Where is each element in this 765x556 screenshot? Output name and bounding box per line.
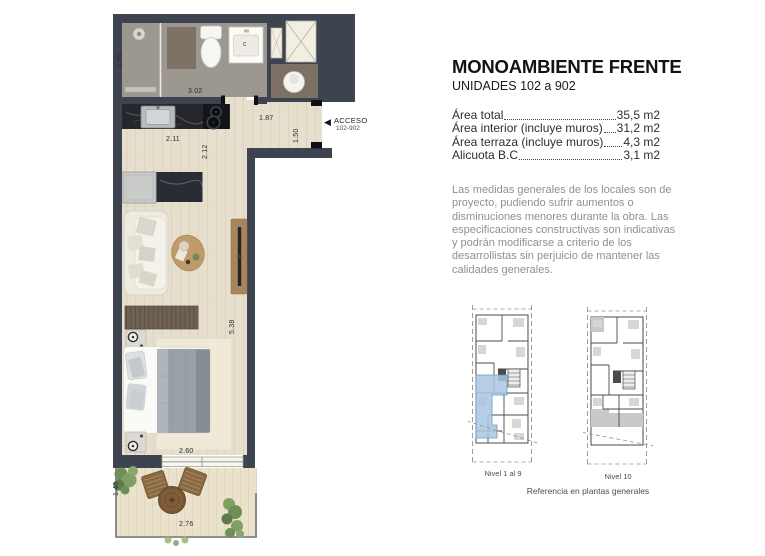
dim-kitchen-width: 2.11	[166, 136, 180, 143]
kitchen-island	[157, 172, 203, 202]
sofa	[124, 211, 168, 295]
area-row: Área interior (incluye muros) 31,2 m2	[452, 122, 660, 136]
area-label: Área interior (incluye muros)	[452, 121, 603, 135]
toilet	[201, 26, 222, 68]
area-row: Área terraza (incluye muros) 4,3 m2	[452, 135, 660, 149]
dim-terrace-width: 2.76	[179, 521, 193, 528]
laundry-room	[271, 64, 318, 98]
area-label: Área terraza (incluye muros)	[452, 135, 603, 149]
nightstand-bottom	[126, 432, 146, 452]
area-label: Área total	[452, 108, 503, 122]
dim-entry-depth: 1.50	[293, 129, 300, 143]
disclaimer-text: Las medidas generales de los locales son…	[452, 184, 680, 277]
area-row: Área total 35,5 m2	[452, 108, 660, 122]
bed	[124, 347, 210, 433]
thumbnail-label-1-9: Nivel 1 al 9	[468, 469, 538, 478]
area-row: Alicuota B.C 3,1 m2	[452, 149, 660, 163]
outdoor-table	[159, 487, 186, 514]
kitchen-sink	[141, 106, 175, 128]
floor-plan	[0, 0, 400, 556]
dim-entry-width: 1.87	[259, 115, 273, 122]
area-value: 3,1 m2	[623, 148, 660, 162]
dim-shower-width: 1.50	[117, 54, 124, 68]
dots-leader	[604, 132, 616, 133]
access-units: 102-902	[336, 125, 360, 132]
thumbnail-label-10: Nivel 10	[583, 472, 653, 481]
area-value: 4,3 m2	[623, 135, 660, 149]
shower-mat	[167, 27, 196, 69]
fridge	[123, 172, 156, 203]
level-thumbnail-10	[583, 305, 653, 471]
vanity-cold-water-label: c	[243, 41, 247, 48]
area-table: Área total 35,5 m2 Área interior (incluy…	[452, 108, 660, 162]
area-label: Alicuota B.C	[452, 148, 518, 162]
page-subtitle: UNIDADES 102 a 902	[452, 79, 576, 93]
dots-leader	[604, 146, 622, 147]
area-value: 31,2 m2	[617, 121, 660, 135]
reference-caption: Referencia en plantas generales	[490, 486, 686, 496]
access-arrow-icon: ◀	[324, 118, 331, 127]
shaft	[271, 28, 282, 58]
page-title: MONOAMBIENTE FRENTE	[452, 56, 682, 78]
access-label: ACCESO	[334, 116, 367, 125]
dim-living-length: 5.38	[229, 320, 236, 334]
terrace-window	[162, 457, 243, 467]
area-value: 35,5 m2	[617, 108, 660, 122]
brochure-page: 1.50 3.02 2.11 2.12 1.87 1.50 5.38 2.60 …	[0, 0, 765, 556]
dresser	[125, 306, 198, 329]
level-thumbnail-1-9	[468, 303, 538, 469]
dots-leader	[519, 159, 622, 160]
cooktop	[203, 104, 229, 129]
elevator-shaft	[286, 21, 316, 62]
tv-unit	[231, 219, 247, 294]
dim-kitchen-depth: 2.12	[202, 145, 209, 159]
dim-terrace-depth: 1.40	[113, 482, 120, 496]
dim-bathroom-width: 3.02	[188, 88, 202, 95]
dots-leader	[504, 119, 615, 120]
dim-window-width: 2.60	[179, 448, 193, 455]
